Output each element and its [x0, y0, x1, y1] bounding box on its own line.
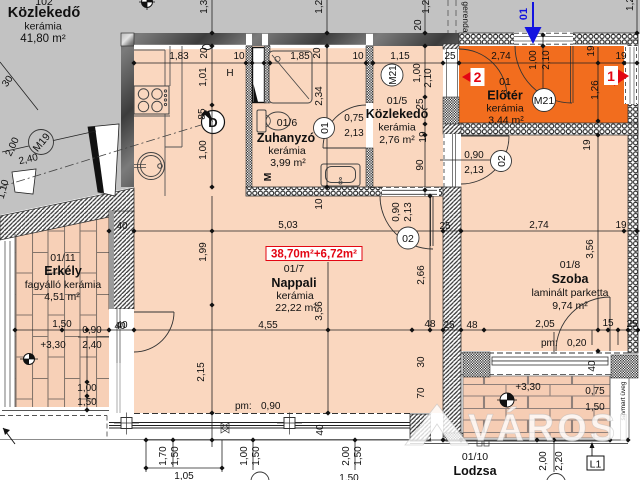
svg-text:0,75: 0,75	[344, 113, 364, 124]
svg-text:1,00: 1,00	[528, 50, 539, 70]
svg-text:41,80 m²: 41,80 m²	[20, 33, 66, 45]
svg-text:19: 19	[615, 51, 627, 62]
svg-text:2,76 m²: 2,76 m²	[379, 134, 415, 146]
svg-text:5,03: 5,03	[278, 220, 298, 231]
svg-text:2,13: 2,13	[403, 202, 414, 222]
svg-text:VÁROSI: VÁROSI	[468, 406, 632, 450]
svg-text:40: 40	[114, 321, 126, 332]
svg-text:10: 10	[233, 51, 245, 62]
svg-text:1,2: 1,2	[625, 0, 636, 11]
svg-text:3,56: 3,56	[314, 301, 325, 321]
svg-text:L1: L1	[590, 459, 602, 471]
svg-text:1,50: 1,50	[353, 446, 364, 466]
svg-text:01/10: 01/10	[462, 451, 488, 463]
svg-text:2,20: 2,20	[554, 451, 565, 471]
svg-text:1: 1	[607, 68, 615, 84]
svg-text:48: 48	[466, 320, 478, 331]
svg-text:19: 19	[586, 45, 597, 57]
svg-text:1,50: 1,50	[77, 397, 97, 408]
svg-text:1,15: 1,15	[390, 51, 410, 62]
svg-text:0,90: 0,90	[391, 202, 402, 222]
svg-text:fagyálló kerámia: fagyálló kerámia	[25, 279, 102, 291]
svg-text:01/11: 01/11	[50, 252, 76, 264]
svg-text:01: 01	[518, 8, 530, 20]
svg-text:0,90: 0,90	[82, 325, 102, 336]
svg-text:kerámia: kerámia	[268, 145, 306, 157]
svg-text:Nappali: Nappali	[271, 276, 316, 290]
svg-text:+3,30: +3,30	[40, 340, 66, 351]
svg-text:01/6: 01/6	[277, 117, 298, 129]
svg-text:1,50: 1,50	[339, 473, 359, 480]
svg-text:02: 02	[496, 155, 508, 167]
svg-text:25: 25	[626, 319, 638, 330]
svg-text:90: 90	[415, 159, 426, 171]
svg-text:1,24: 1,24	[314, 0, 325, 14]
svg-text:3,99 m²: 3,99 m²	[270, 157, 306, 169]
svg-text:1,00: 1,00	[198, 140, 209, 160]
svg-text:1,00: 1,00	[77, 383, 97, 394]
svg-text:70: 70	[416, 387, 427, 399]
svg-text:kerámia: kerámia	[378, 122, 416, 134]
svg-text:4,51 m²: 4,51 m²	[44, 291, 80, 303]
svg-text:1,50: 1,50	[52, 319, 72, 330]
svg-text:1,26: 1,26	[590, 80, 601, 100]
svg-text:25: 25	[415, 98, 426, 110]
svg-text:Lodzsa: Lodzsa	[453, 464, 497, 478]
svg-text:9,74 m²: 9,74 m²	[552, 300, 588, 312]
svg-text:1,99: 1,99	[198, 242, 209, 262]
svg-text:19: 19	[582, 139, 593, 151]
svg-text:20: 20	[413, 19, 424, 31]
svg-text:4,55: 4,55	[258, 320, 278, 331]
svg-text:0,20: 0,20	[567, 338, 587, 349]
svg-text:48: 48	[424, 319, 436, 330]
svg-text:Szoba: Szoba	[552, 272, 590, 286]
svg-text:Erkély: Erkély	[44, 264, 82, 278]
svg-text:M21: M21	[534, 95, 555, 107]
svg-text:2,00: 2,00	[538, 451, 549, 471]
svg-text:kerámia: kerámia	[486, 103, 524, 115]
svg-text:38,70m²+6,72m²: 38,70m²+6,72m²	[271, 249, 357, 261]
svg-text:pm:: pm:	[541, 338, 558, 349]
svg-text:40: 40	[587, 360, 598, 372]
svg-text:25: 25	[444, 51, 456, 62]
svg-text:22,22 m²: 22,22 m²	[275, 302, 317, 314]
svg-text:85: 85	[197, 108, 208, 120]
svg-text:3,56: 3,56	[585, 239, 596, 259]
svg-text:19: 19	[615, 220, 627, 231]
svg-text:2,40: 2,40	[82, 340, 102, 351]
svg-text:2,34: 2,34	[314, 86, 325, 106]
svg-text:1,83: 1,83	[169, 51, 189, 62]
svg-text:01/7: 01/7	[284, 263, 305, 275]
svg-text:kerámia: kerámia	[24, 21, 62, 33]
svg-text:1,50: 1,50	[251, 446, 262, 466]
svg-text:kerámia: kerámia	[276, 290, 314, 302]
svg-text:2,66: 2,66	[416, 265, 427, 285]
svg-text:+3,30: +3,30	[515, 382, 541, 393]
svg-text:1,00: 1,00	[412, 63, 423, 83]
svg-text:1,26: 1,26	[421, 0, 432, 14]
svg-text:01/5: 01/5	[387, 95, 408, 107]
svg-text:1,01: 1,01	[198, 67, 209, 87]
svg-text:1,05: 1,05	[174, 471, 194, 480]
svg-text:20: 20	[312, 47, 323, 59]
svg-text:D: D	[208, 115, 217, 130]
svg-text:40: 40	[116, 221, 128, 232]
svg-text:2,15: 2,15	[196, 362, 207, 382]
svg-text:15: 15	[602, 318, 614, 329]
svg-text:1,85: 1,85	[290, 51, 310, 62]
svg-text:2,10: 2,10	[541, 50, 552, 70]
svg-text:0,75: 0,75	[585, 386, 605, 397]
svg-text:0,90: 0,90	[464, 150, 484, 161]
svg-text:01: 01	[319, 122, 331, 134]
svg-text:2,10: 2,10	[423, 68, 434, 88]
svg-text:M21: M21	[388, 65, 399, 85]
svg-text:0,90: 0,90	[261, 401, 281, 412]
svg-text:30: 30	[416, 356, 427, 368]
svg-text:40: 40	[315, 424, 326, 436]
svg-text:2,13: 2,13	[344, 128, 364, 139]
svg-text:pm:: pm:	[235, 401, 252, 412]
svg-text:H: H	[226, 68, 233, 79]
svg-text:Előtér: Előtér	[487, 89, 523, 103]
svg-text:01/8: 01/8	[560, 259, 581, 271]
svg-text:1,70: 1,70	[158, 446, 169, 466]
svg-text:02: 02	[402, 233, 414, 245]
svg-text:25: 25	[443, 320, 455, 331]
svg-text:01: 01	[499, 76, 511, 88]
svg-text:1,00: 1,00	[239, 446, 250, 466]
svg-text:2,74: 2,74	[491, 51, 511, 62]
svg-text:1,31: 1,31	[199, 0, 210, 14]
svg-text:3,44 m²: 3,44 m²	[488, 115, 524, 127]
svg-text:2,13: 2,13	[464, 165, 484, 176]
svg-text:2,74: 2,74	[529, 220, 549, 231]
svg-text:laminált parketta: laminált parketta	[531, 287, 608, 299]
svg-text:Közlekedő: Közlekedő	[8, 5, 81, 21]
svg-text:Zuhanyzó: Zuhanyzó	[257, 131, 316, 145]
svg-text:gerenda: gerenda	[461, 1, 471, 32]
svg-text:2,00: 2,00	[341, 446, 352, 466]
svg-text:2,05: 2,05	[535, 319, 555, 330]
svg-text:20: 20	[199, 47, 210, 59]
svg-text:1,50: 1,50	[170, 446, 181, 466]
svg-text:25: 25	[439, 221, 451, 232]
svg-text:10: 10	[352, 51, 364, 62]
svg-text:10: 10	[314, 198, 325, 210]
svg-text:M: M	[262, 172, 274, 181]
svg-text:19: 19	[418, 131, 429, 143]
svg-text:2: 2	[474, 69, 482, 85]
